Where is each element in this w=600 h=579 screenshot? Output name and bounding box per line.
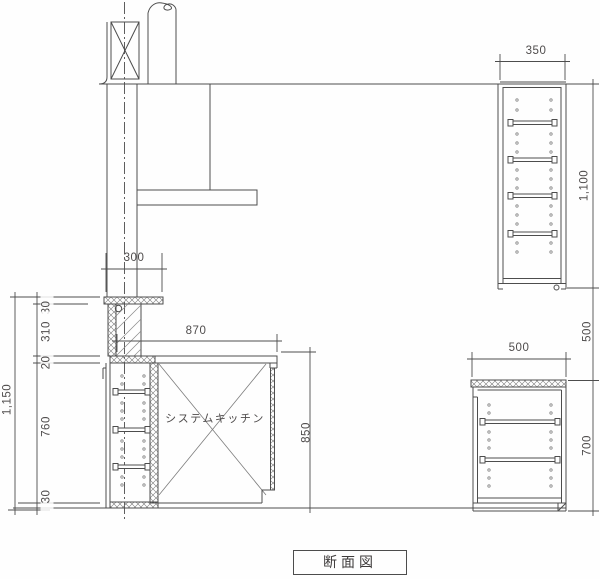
dim-base-cabinet-height: 700 — [582, 416, 595, 476]
section-drawing-canvas: 300 870 350 500 1,150 30 310 20 760 30 8… — [0, 0, 600, 579]
wall-stud-box — [111, 22, 139, 79]
drawing-title: 断面図 — [294, 551, 406, 574]
dim-left-total-height: 1,150 — [2, 370, 15, 430]
under-counter-shelf-unit — [103, 363, 158, 508]
kitchen-unit-label: システムキッチン — [145, 410, 285, 426]
dim-left-cabinet-height: 760 — [41, 407, 54, 447]
dim-mid-gap-height: 500 — [582, 302, 595, 362]
section-linework — [0, 0, 600, 579]
dim-upper-cabinet-depth: 350 — [506, 45, 566, 58]
dim-base-kick-height: 30 — [41, 477, 54, 517]
dim-bar-counter-depth: 300 — [104, 252, 164, 265]
dim-upper-cabinet-height: 1,100 — [579, 156, 592, 216]
kitchen-unit-box — [158, 364, 275, 503]
dim-kitchen-counter-width: 870 — [166, 325, 226, 338]
dim-kitchen-counter-height: 850 — [301, 403, 314, 463]
kitchen-counter — [110, 356, 277, 368]
upper-wall-cabinet — [498, 82, 566, 290]
range-hood — [137, 84, 257, 205]
exhaust-duct — [148, 3, 176, 84]
dim-base-cabinet-depth: 500 — [489, 342, 549, 355]
dim-counter-thickness: 20 — [41, 343, 54, 383]
title-box: 断面図 — [293, 550, 407, 575]
cabinet-handle — [554, 285, 559, 290]
base-cabinet — [471, 380, 566, 511]
